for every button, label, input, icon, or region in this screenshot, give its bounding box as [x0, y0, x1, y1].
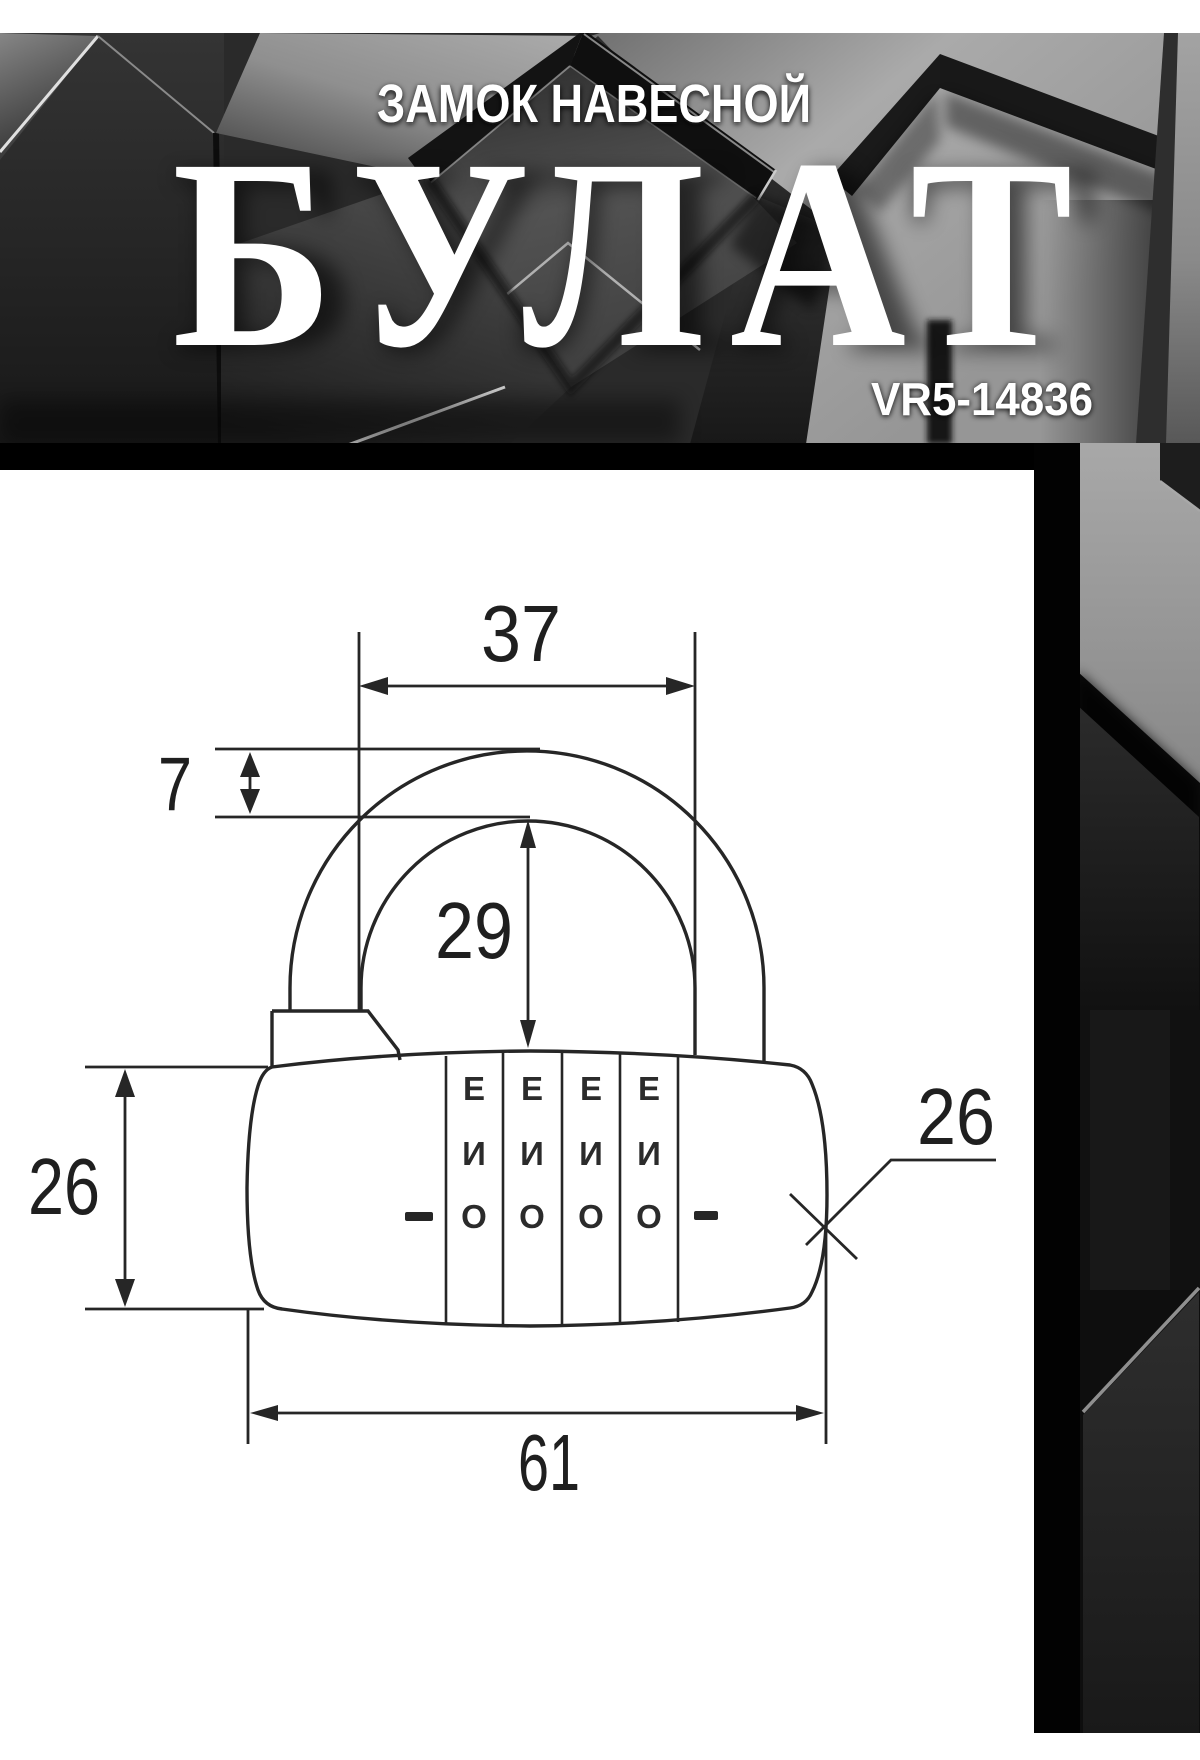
svg-text:26: 26: [917, 1072, 995, 1161]
svg-text:О: О: [578, 1198, 604, 1235]
svg-text:И: И: [579, 1135, 603, 1172]
svg-text:И: И: [637, 1135, 661, 1172]
svg-text:26: 26: [28, 1142, 100, 1231]
svg-text:О: О: [461, 1198, 487, 1235]
svg-text:VR5-14836: VR5-14836: [871, 373, 1093, 425]
svg-text:7: 7: [158, 742, 192, 827]
svg-text:О: О: [636, 1198, 662, 1235]
svg-text:Е: Е: [463, 1070, 485, 1107]
svg-text:Е: Е: [580, 1070, 602, 1107]
svg-text:О: О: [519, 1198, 545, 1235]
svg-text:Е: Е: [521, 1070, 543, 1107]
svg-text:И: И: [462, 1135, 486, 1172]
svg-text:29: 29: [435, 886, 513, 975]
svg-text:Е: Е: [638, 1070, 660, 1107]
svg-text:61: 61: [518, 1418, 580, 1507]
svg-text:БУЛАТ: БУЛАТ: [172, 103, 1098, 404]
svg-text:И: И: [520, 1135, 544, 1172]
svg-text:37: 37: [481, 589, 561, 678]
